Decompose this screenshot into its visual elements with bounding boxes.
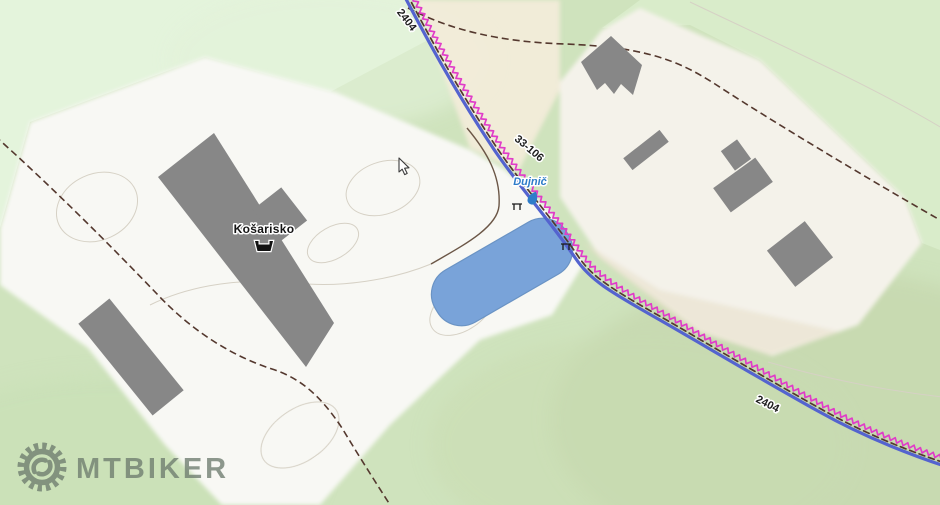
watermark-text: MTBIKER: [76, 453, 229, 485]
settlement-label: Košarisko: [234, 222, 295, 236]
spring-label: Dujnič: [513, 176, 547, 188]
map-canvas[interactable]: 2404 33-106 2404 Košarisko Dujnič MTBIKE…: [0, 0, 940, 505]
map-viewport[interactable]: 2404 33-106 2404 Košarisko Dujnič MTBIKE…: [0, 0, 940, 505]
